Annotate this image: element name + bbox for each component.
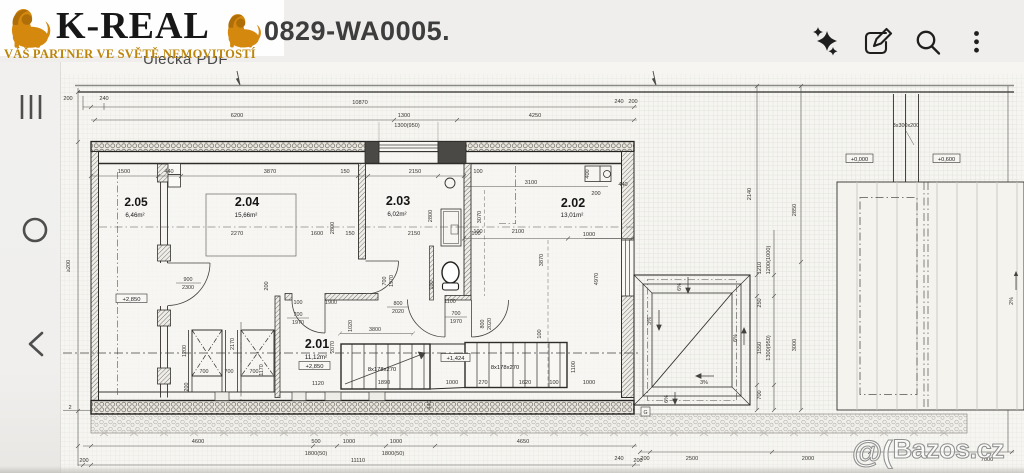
svg-text:8x178x270: 8x178x270 — [491, 365, 519, 371]
svg-text:440: 440 — [164, 169, 173, 175]
svg-text:3%: 3% — [700, 380, 708, 386]
svg-text:3870: 3870 — [539, 254, 545, 266]
svg-text:+0,000: +0,000 — [851, 157, 868, 163]
svg-text:1210: 1210 — [757, 262, 763, 274]
svg-text:2.04: 2.04 — [235, 195, 259, 209]
svg-text:2.03: 2.03 — [386, 194, 410, 208]
svg-text:1500: 1500 — [118, 169, 130, 175]
svg-text:3x300x200: 3x300x200 — [893, 123, 919, 129]
svg-text:+2,850: +2,850 — [306, 364, 324, 370]
svg-text:2850: 2850 — [792, 204, 798, 216]
svg-text:1120: 1120 — [312, 381, 324, 387]
svg-text:4250: 4250 — [529, 113, 541, 119]
svg-text:2000: 2000 — [802, 456, 814, 462]
svg-text:1970: 1970 — [389, 275, 395, 287]
svg-text:1200(1000): 1200(1000) — [766, 246, 772, 275]
svg-text:1020: 1020 — [348, 320, 354, 332]
svg-text:1300: 1300 — [398, 113, 410, 119]
svg-text:2.01: 2.01 — [305, 337, 329, 351]
svg-text:3000: 3000 — [792, 339, 798, 351]
svg-text:4650: 4650 — [517, 439, 529, 445]
svg-text:3870: 3870 — [264, 169, 276, 175]
svg-text:100: 100 — [294, 300, 303, 306]
svg-text:700: 700 — [225, 369, 234, 375]
svg-text:100: 100 — [473, 229, 482, 235]
svg-text:3100: 3100 — [525, 180, 537, 186]
svg-text:6200: 6200 — [231, 113, 243, 119]
svg-text:4600: 4600 — [192, 439, 204, 445]
svg-text:2140: 2140 — [747, 188, 753, 200]
svg-text:1890: 1890 — [378, 380, 390, 386]
svg-text:2800: 2800 — [428, 210, 434, 222]
svg-text:2.05: 2.05 — [124, 195, 148, 209]
svg-text:13,01m²: 13,01m² — [561, 212, 584, 219]
svg-text:≥200: ≥200 — [66, 260, 72, 272]
svg-text:2100: 2100 — [512, 229, 524, 235]
svg-text:1000: 1000 — [446, 380, 458, 386]
svg-text:800: 800 — [394, 301, 403, 307]
svg-text:700: 700 — [250, 369, 259, 375]
svg-text:1000: 1000 — [390, 439, 402, 445]
svg-text:2.02: 2.02 — [561, 196, 585, 210]
svg-text:270: 270 — [478, 380, 487, 386]
svg-text:1900: 1900 — [325, 300, 337, 306]
svg-text:2150: 2150 — [408, 231, 420, 237]
svg-text:11110: 11110 — [351, 458, 365, 464]
svg-text:1800(50): 1800(50) — [382, 451, 405, 457]
svg-text:1100: 1100 — [444, 299, 456, 305]
svg-text:1100: 1100 — [571, 361, 577, 373]
svg-text:1970: 1970 — [292, 320, 304, 326]
svg-text:200: 200 — [264, 281, 270, 290]
svg-text:1000: 1000 — [583, 380, 595, 386]
svg-text:1170: 1170 — [259, 364, 265, 376]
svg-text:15,66m²: 15,66m² — [235, 212, 258, 219]
svg-text:440: 440 — [618, 182, 627, 188]
svg-text:240: 240 — [99, 96, 108, 102]
svg-text:2020: 2020 — [487, 318, 493, 330]
svg-text:700: 700 — [200, 369, 209, 375]
svg-text:6,02m²: 6,02m² — [387, 211, 406, 218]
svg-text:+2,850: +2,850 — [123, 297, 141, 303]
svg-text:200: 200 — [640, 456, 649, 462]
svg-text:240: 240 — [614, 456, 623, 462]
svg-text:200: 200 — [63, 96, 72, 102]
svg-text:3800: 3800 — [369, 327, 381, 333]
svg-text:+0,600: +0,600 — [938, 157, 955, 163]
svg-text:900: 900 — [184, 277, 193, 283]
svg-text:700: 700 — [757, 390, 763, 399]
svg-text:1800(50): 1800(50) — [305, 451, 328, 457]
svg-text:6,46m²: 6,46m² — [125, 212, 144, 219]
svg-text:200: 200 — [79, 458, 88, 464]
svg-text:1970: 1970 — [450, 319, 462, 325]
svg-text:1000: 1000 — [343, 439, 355, 445]
svg-text:200: 200 — [591, 191, 600, 197]
svg-text:2800: 2800 — [330, 222, 336, 234]
svg-text:500: 500 — [311, 439, 320, 445]
svg-text:2020: 2020 — [392, 309, 404, 315]
svg-text:1300(950): 1300(950) — [766, 335, 772, 361]
svg-text:10870: 10870 — [352, 100, 368, 106]
svg-text:100: 100 — [429, 280, 435, 289]
svg-text:440: 440 — [427, 400, 433, 409]
svg-text:150: 150 — [340, 169, 349, 175]
svg-text:2: 2 — [68, 405, 71, 411]
svg-text:G: G — [643, 410, 647, 416]
svg-text:700: 700 — [382, 277, 388, 286]
svg-text:6%: 6% — [677, 283, 683, 291]
svg-text:6%: 6% — [664, 395, 670, 403]
svg-text:1000: 1000 — [583, 232, 595, 238]
svg-text:6%: 6% — [733, 334, 739, 342]
svg-text:2270: 2270 — [231, 231, 243, 237]
svg-text:3%: 3% — [647, 317, 653, 325]
svg-text:2150: 2150 — [409, 169, 421, 175]
svg-text:3070: 3070 — [477, 211, 483, 223]
svg-text:700: 700 — [452, 311, 461, 317]
svg-text:200: 200 — [628, 99, 637, 105]
svg-text:150: 150 — [345, 231, 354, 237]
svg-text:2%: 2% — [1009, 297, 1015, 305]
svg-text:100: 100 — [473, 169, 482, 175]
svg-text:+1,424: +1,424 — [447, 356, 466, 362]
svg-text:800: 800 — [480, 320, 486, 329]
svg-text:2070: 2070 — [330, 341, 336, 353]
svg-text:11,12m²: 11,12m² — [305, 354, 327, 361]
svg-text:2170: 2170 — [230, 338, 236, 350]
svg-text:250: 250 — [757, 298, 763, 307]
svg-text:2300: 2300 — [182, 285, 194, 291]
svg-text:200: 200 — [184, 383, 190, 392]
svg-text:1300(950): 1300(950) — [394, 123, 420, 129]
svg-text:4970: 4970 — [594, 273, 600, 285]
svg-text:2500: 2500 — [686, 456, 698, 462]
svg-text:400: 400 — [585, 169, 591, 178]
svg-text:100: 100 — [537, 329, 543, 338]
svg-text:1550: 1550 — [757, 342, 763, 354]
svg-text:240: 240 — [614, 99, 623, 105]
svg-text:1600: 1600 — [311, 231, 323, 237]
svg-text:700: 700 — [294, 312, 303, 318]
svg-text:100: 100 — [549, 380, 558, 386]
svg-text:1200: 1200 — [182, 345, 188, 357]
svg-text:8x178x270: 8x178x270 — [368, 367, 396, 373]
svg-text:1620: 1620 — [519, 380, 531, 386]
